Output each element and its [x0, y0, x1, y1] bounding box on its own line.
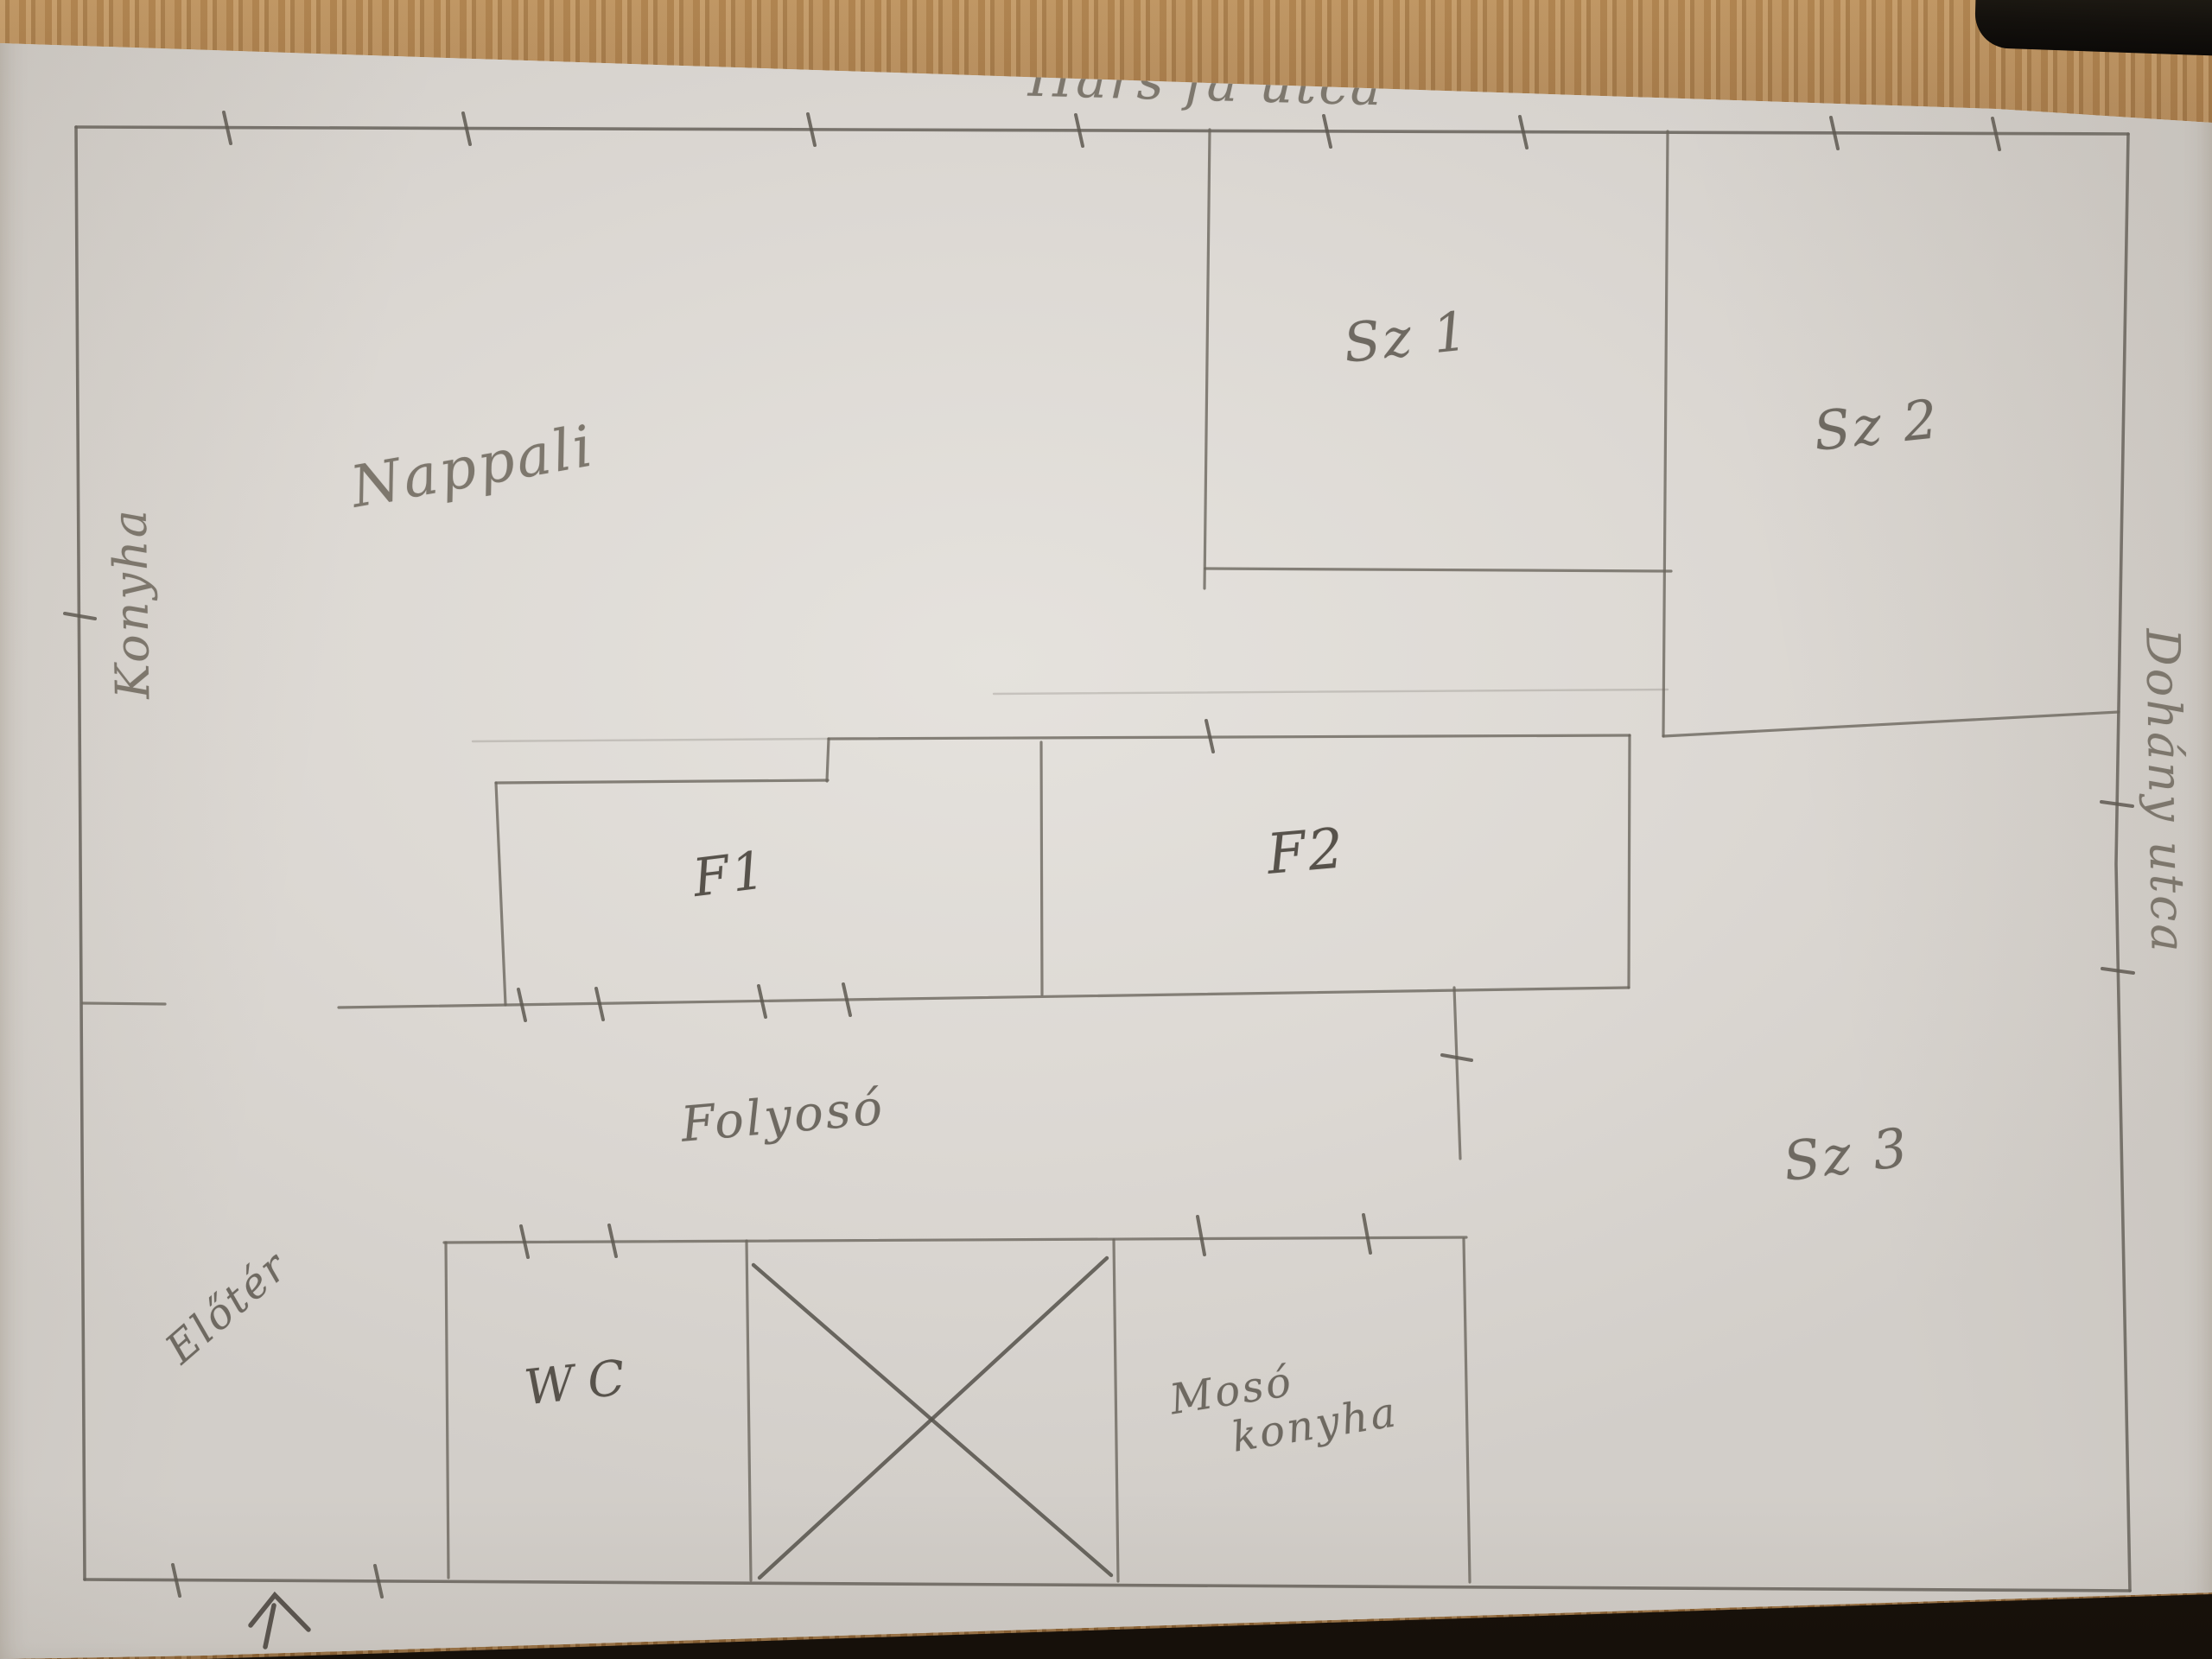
entrance-arrow [251, 1595, 308, 1647]
paper-sheet: Hárs fa utca Dohány utca Nappali Konyha … [0, 0, 2212, 1659]
stairs-cross [753, 1258, 1111, 1578]
photo-scene: Hárs fa utca Dohány utca Nappali Konyha … [0, 0, 2212, 1659]
room-label-f1: F1 [690, 840, 771, 909]
outer-walls [76, 127, 2130, 1591]
construction-lines [473, 690, 1668, 741]
room-label-f2: F2 [1264, 817, 1348, 887]
room-label-wc: WC [522, 1349, 641, 1416]
window-ticks [65, 112, 2133, 1597]
room-label-sz2: Sz 2 [1810, 387, 1942, 463]
inner-walls [83, 130, 2119, 1582]
room-label-sz1: Sz 1 [1340, 299, 1472, 375]
room-label-konyha: Konyha [103, 507, 161, 700]
street-label-right: Dohány utca [2135, 628, 2196, 955]
floorplan-drawing [0, 0, 2212, 1659]
dark-object-top-right [1974, 0, 2212, 56]
